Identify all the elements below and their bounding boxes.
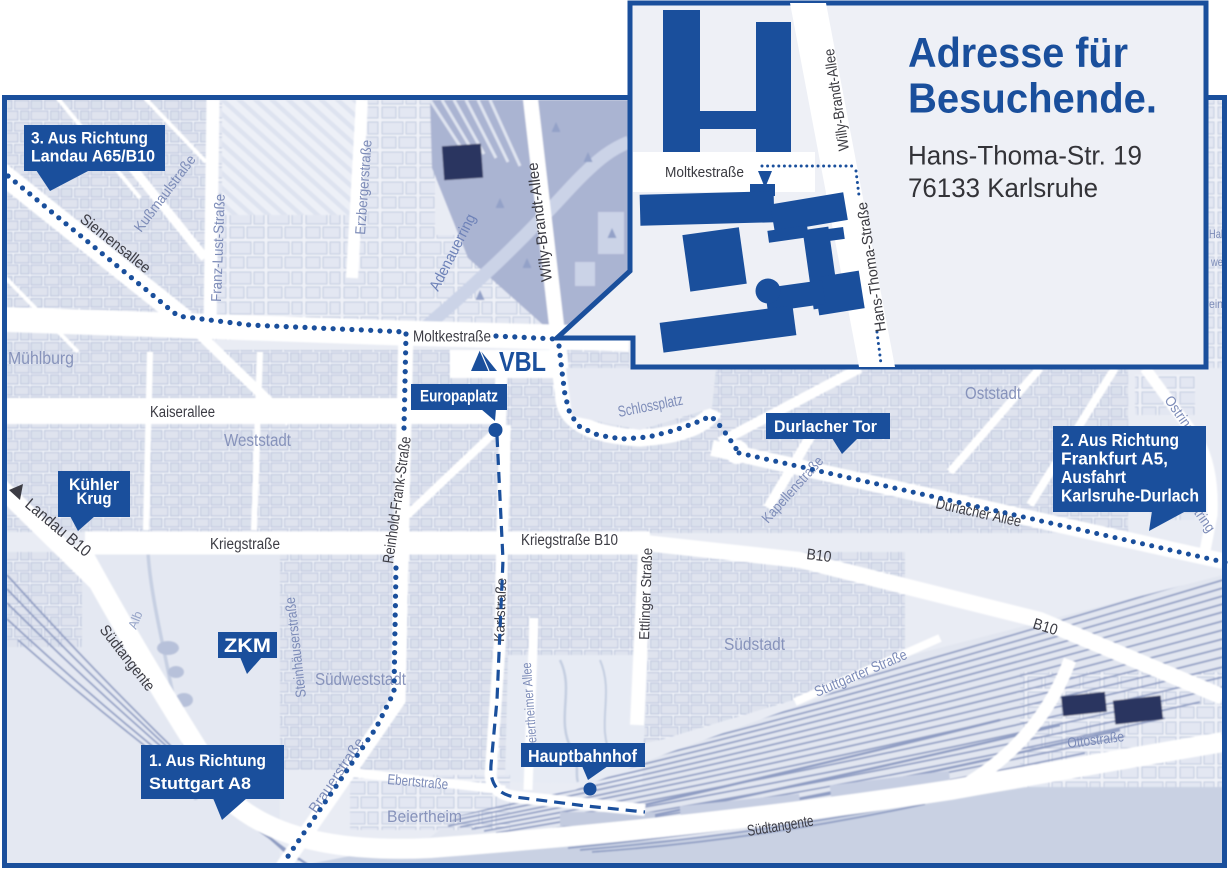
svg-text:2. Aus Richtung: 2. Aus Richtung [1061,430,1179,450]
svg-text:Oststadt: Oststadt [965,383,1021,403]
svg-text:Frankfurt A5,: Frankfurt A5, [1061,449,1168,469]
svg-text:Besuchende.: Besuchende. [908,75,1157,122]
svg-text:ein: ein [1209,297,1223,311]
svg-text:Moltkestraße: Moltkestraße [413,329,491,346]
svg-text:Kaiserallee: Kaiserallee [150,404,215,421]
svg-text:Krug: Krug [77,489,112,508]
svg-text:Hans-Thoma-Str. 19: Hans-Thoma-Str. 19 [908,141,1142,171]
svg-text:Beiertheim: Beiertheim [387,808,462,826]
svg-text:Hauptbahnhof: Hauptbahnhof [528,746,637,766]
svg-text:3. Aus Richtung: 3. Aus Richtung [31,129,148,148]
svg-text:Ettlinger Straße: Ettlinger Straße [637,548,656,641]
svg-text:Südstadt: Südstadt [724,634,785,654]
svg-text:Moltkestraße: Moltkestraße [665,164,744,181]
svg-text:Ausfahrt: Ausfahrt [1061,467,1126,487]
svg-text:Kriegstraße: Kriegstraße [210,536,280,553]
svg-text:Europaplatz: Europaplatz [420,388,498,406]
svg-text:Karlsruhe-Durlach: Karlsruhe-Durlach [1061,486,1199,506]
svg-text:Hal: Hal [1209,227,1223,241]
svg-text:Durlacher Tor: Durlacher Tor [774,417,877,436]
svg-text:VBL: VBL [499,346,546,377]
svg-text:1. Aus Richtung: 1. Aus Richtung [149,751,266,770]
svg-text:Weststadt: Weststadt [224,430,291,450]
svg-text:Stuttgart A8: Stuttgart A8 [149,774,251,793]
svg-text:Kriegstraße B10: Kriegstraße B10 [521,532,618,549]
svg-text:76133 Karlsruhe: 76133 Karlsruhe [908,173,1098,203]
svg-text:Adresse für: Adresse für [908,29,1128,76]
svg-text:ZKM: ZKM [224,636,271,657]
svg-text:Mühlburg: Mühlburg [8,348,74,368]
svg-text:Landau A65/B10: Landau A65/B10 [31,147,155,166]
svg-text:B10: B10 [806,546,833,566]
